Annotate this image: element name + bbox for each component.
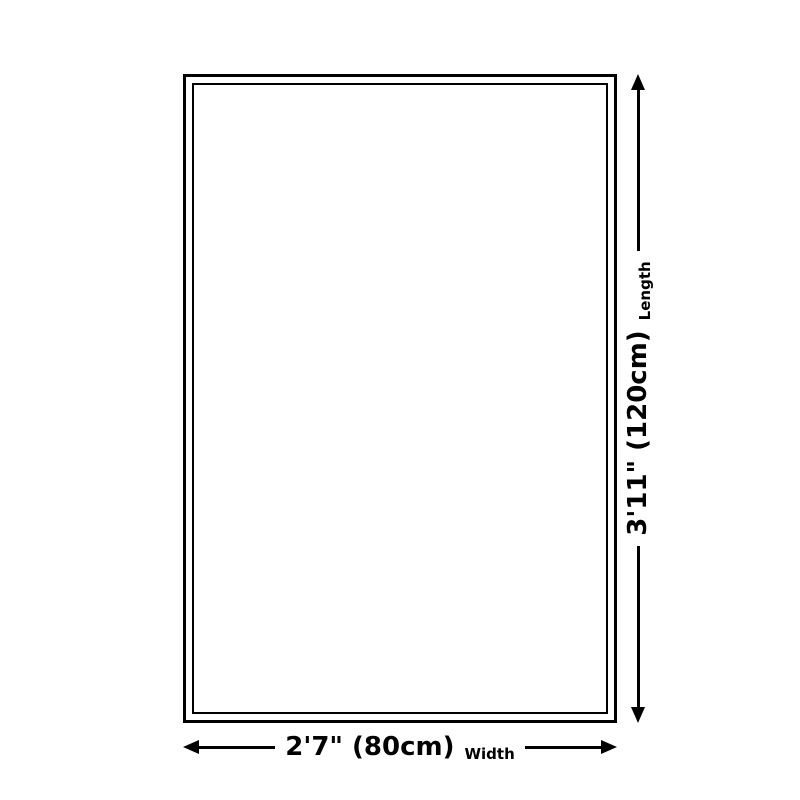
rug-inner-border [192, 83, 608, 714]
width-value-label: 2'7" (80cm) [285, 732, 454, 762]
width-dimension: 2'7" (80cm) Width [183, 730, 617, 764]
rug-outline [183, 74, 617, 723]
length-dimension: 3'11" (120cm) Length [616, 74, 660, 723]
width-dimension-line-right [525, 746, 601, 749]
width-dimension-line-left [199, 746, 275, 749]
arrow-left-icon [183, 740, 199, 754]
length-value-label: 3'11" (120cm) [623, 330, 653, 535]
length-axis-label: Length [636, 261, 654, 320]
size-diagram: 3'11" (120cm) Length 2'7" (80cm) Width [0, 0, 800, 800]
width-axis-label: Width [464, 745, 514, 763]
arrow-up-icon [631, 74, 645, 90]
arrow-down-icon [631, 707, 645, 723]
length-dimension-line-upper [637, 90, 640, 251]
length-dimension-line-lower [637, 546, 640, 707]
arrow-right-icon [601, 740, 617, 754]
